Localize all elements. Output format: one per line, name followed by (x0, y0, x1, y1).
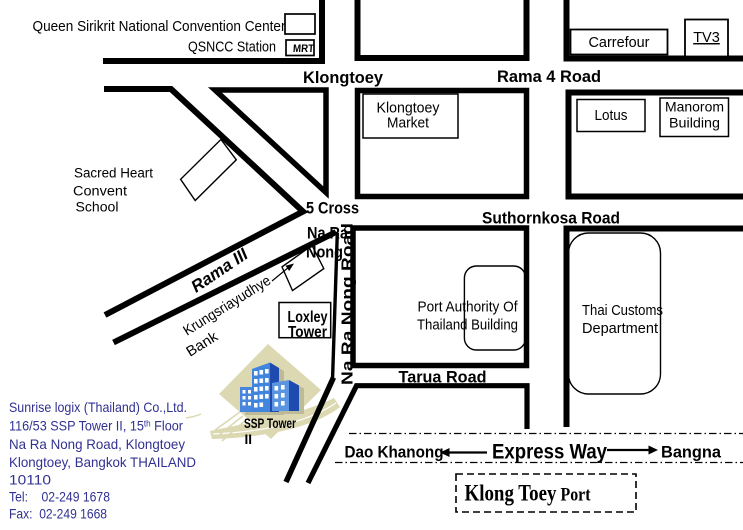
svg-text:Na Ra Nong Road: Na Ra Nong Road (340, 223, 357, 385)
svg-text:Manorom: Manorom (665, 100, 724, 115)
svg-text:Express Way: Express Way (492, 441, 607, 464)
svg-text:II: II (245, 432, 253, 447)
svg-text:116/53 SSP Tower II, 15th Flo: 116/53 SSP Tower II, 15th Floor (9, 417, 183, 433)
svg-text:Fax: 02-249 1668: Fax: 02-249 1668 (9, 506, 107, 522)
svg-text:Tower: Tower (288, 324, 327, 341)
svg-text:Port Authority Of: Port Authority Of (418, 300, 519, 316)
svg-text:5 Cross: 5 Cross (306, 200, 359, 218)
svg-text:Klongtoey: Klongtoey (377, 101, 441, 117)
svg-text:Department: Department (582, 321, 658, 337)
svg-text:Sunrise logix (Thailand) Co.,L: Sunrise logix (Thailand) Co.,Ltd. (9, 399, 187, 415)
svg-text:Tel: 02-249 1678: Tel: 02-249 1678 (9, 489, 110, 505)
svg-text:10110: 10110 (9, 472, 51, 488)
svg-text:Lotus: Lotus (595, 108, 628, 124)
svg-text:SSP Tower: SSP Tower (244, 416, 297, 431)
svg-text:Port: Port (561, 486, 592, 506)
svg-text:Building: Building (669, 116, 720, 131)
svg-text:QSNCC Station: QSNCC Station (188, 40, 276, 56)
svg-text:School: School (76, 200, 119, 216)
svg-text:Convent: Convent (73, 184, 127, 200)
svg-text:Thailand Building: Thailand Building (417, 318, 518, 334)
svg-text:Klongtoey: Klongtoey (303, 68, 384, 87)
svg-text:Queen Sirikrit National Conven: Queen Sirikrit National Convention Cente… (33, 19, 286, 35)
svg-text:Bangna: Bangna (661, 443, 722, 462)
svg-text:Thai Customs: Thai Customs (582, 303, 663, 319)
svg-text:Na Ra Nong Road, Klongtoey: Na Ra Nong Road, Klongtoey (9, 436, 185, 452)
svg-text:TV3: TV3 (693, 30, 720, 46)
svg-text:Klong Toey: Klong Toey (465, 481, 557, 506)
svg-text:Dao Khanong: Dao Khanong (345, 443, 444, 462)
svg-text:Carrefour: Carrefour (589, 35, 650, 51)
svg-text:Suthornkosa Road: Suthornkosa Road (482, 209, 620, 228)
svg-text:MRT: MRT (293, 43, 315, 55)
svg-text:Tarua Road: Tarua Road (399, 368, 487, 387)
svg-text:Rama 4 Road: Rama 4 Road (497, 67, 601, 86)
svg-text:Sacred Heart: Sacred Heart (74, 166, 153, 182)
svg-text:Klongtoey, Bangkok THAILAND: Klongtoey, Bangkok THAILAND (9, 454, 196, 470)
svg-text:Market: Market (387, 116, 429, 132)
